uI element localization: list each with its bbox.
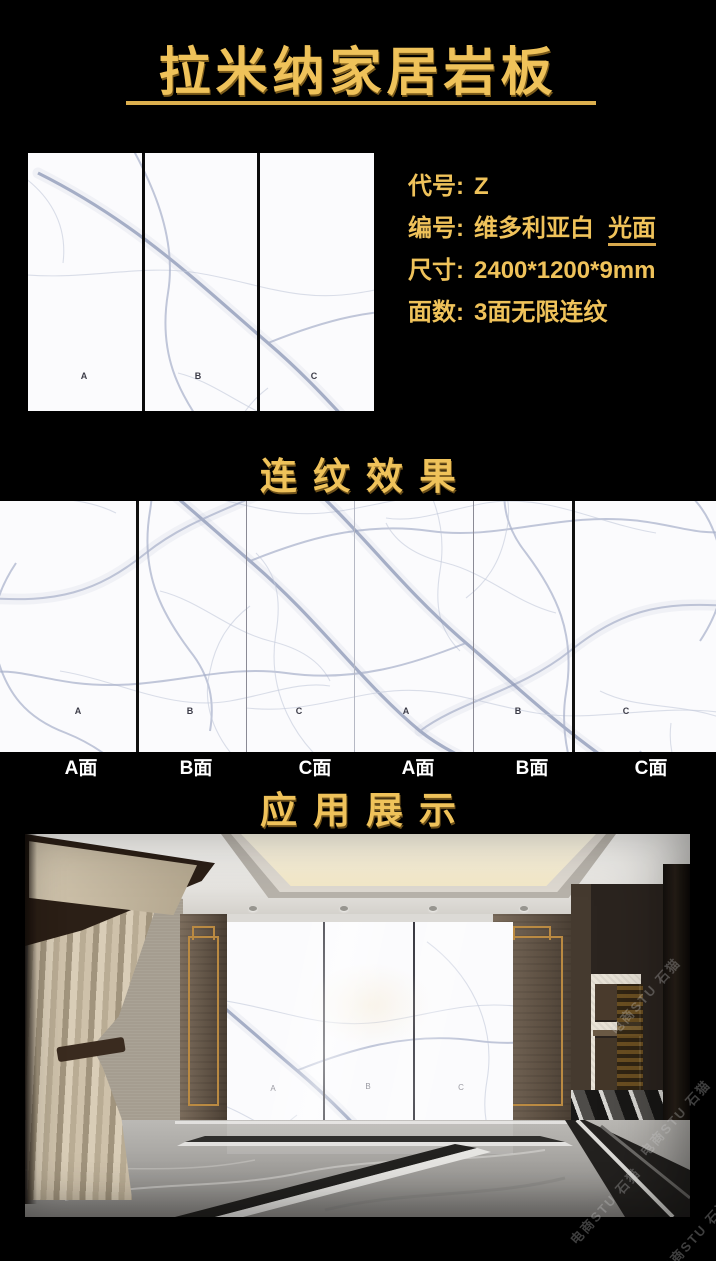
spec-value: 维多利亚白 <box>474 215 594 242</box>
application-room-photo: A B C <box>25 834 690 1217</box>
panel-letter: B <box>365 1082 370 1091</box>
poster-page: 拉米纳家居岩板 A B C 代号:Z 编号:维多利亚白光面 尺寸:2400*12… <box>0 0 716 1261</box>
panel-letter: A <box>270 1084 275 1093</box>
panel-letter: A <box>75 706 82 716</box>
spec-label: 代号: <box>408 173 464 200</box>
face-label-row: A面 B面 C面 A面 B面 C面 <box>0 753 716 779</box>
face-label: A面 <box>402 753 435 780</box>
spec-row-number: 编号:维多利亚白光面 <box>408 214 656 244</box>
panel-divider <box>142 153 145 411</box>
spec-value: 3面无限连纹 <box>474 299 607 326</box>
spec-label: 面数: <box>408 299 464 326</box>
downlight-icon <box>340 906 348 911</box>
panel-letter: B <box>515 706 522 716</box>
panel-letter: A <box>81 371 88 381</box>
face-label: C面 <box>299 753 332 780</box>
panel-letter: A <box>403 706 410 716</box>
panel-divider <box>572 501 575 752</box>
panel-divider <box>246 501 247 752</box>
panel-letter: C <box>311 371 318 381</box>
title-underline <box>126 101 596 105</box>
face-label: A面 <box>65 753 98 780</box>
page-title: 拉米纳家居岩板 <box>0 30 716 105</box>
face-label: C面 <box>635 753 668 780</box>
downlight-icon <box>249 906 257 911</box>
spec-row-faces: 面数:3面无限连纹 <box>408 298 656 328</box>
section-title-application: 应用展示 <box>0 780 716 834</box>
panel-letter: C <box>296 706 303 716</box>
spec-value: Z <box>474 173 489 200</box>
spec-label: 编号: <box>408 215 464 242</box>
gold-trim <box>188 936 219 1106</box>
panel-divider <box>473 501 474 752</box>
corner-shadow <box>25 834 37 1204</box>
face-label: B面 <box>180 753 213 780</box>
continuous-vein-image: A B C A B C <box>0 501 716 752</box>
panel-letter: C <box>458 1083 464 1092</box>
spec-row-code: 代号:Z <box>408 172 656 202</box>
product-slab-image: A B C <box>28 153 374 411</box>
panel-divider <box>136 501 139 752</box>
downlight-icon <box>429 906 437 911</box>
ceiling-light-panel <box>241 834 596 886</box>
section-title-pattern: 连纹效果 <box>0 446 716 500</box>
panel-divider <box>257 153 260 411</box>
panel-letter: C <box>623 706 630 716</box>
panel-letter: B <box>195 371 202 381</box>
spec-label: 尺寸: <box>408 257 464 284</box>
marble-texture <box>0 501 716 752</box>
spec-value: 2400*1200*9mm <box>474 257 656 284</box>
spec-finish-underlined: 光面 <box>608 215 656 246</box>
face-label: B面 <box>516 753 549 780</box>
spec-row-size: 尺寸:2400*1200*9mm <box>408 256 656 286</box>
spec-list: 代号:Z 编号:维多利亚白光面 尺寸:2400*1200*9mm 面数:3面无限… <box>408 172 656 340</box>
wood-panel-left <box>180 914 227 1120</box>
panel-divider <box>354 501 355 752</box>
marble-feature-wall: A B C <box>227 922 513 1120</box>
downlight-icon <box>520 906 528 911</box>
panel-letter: B <box>187 706 194 716</box>
